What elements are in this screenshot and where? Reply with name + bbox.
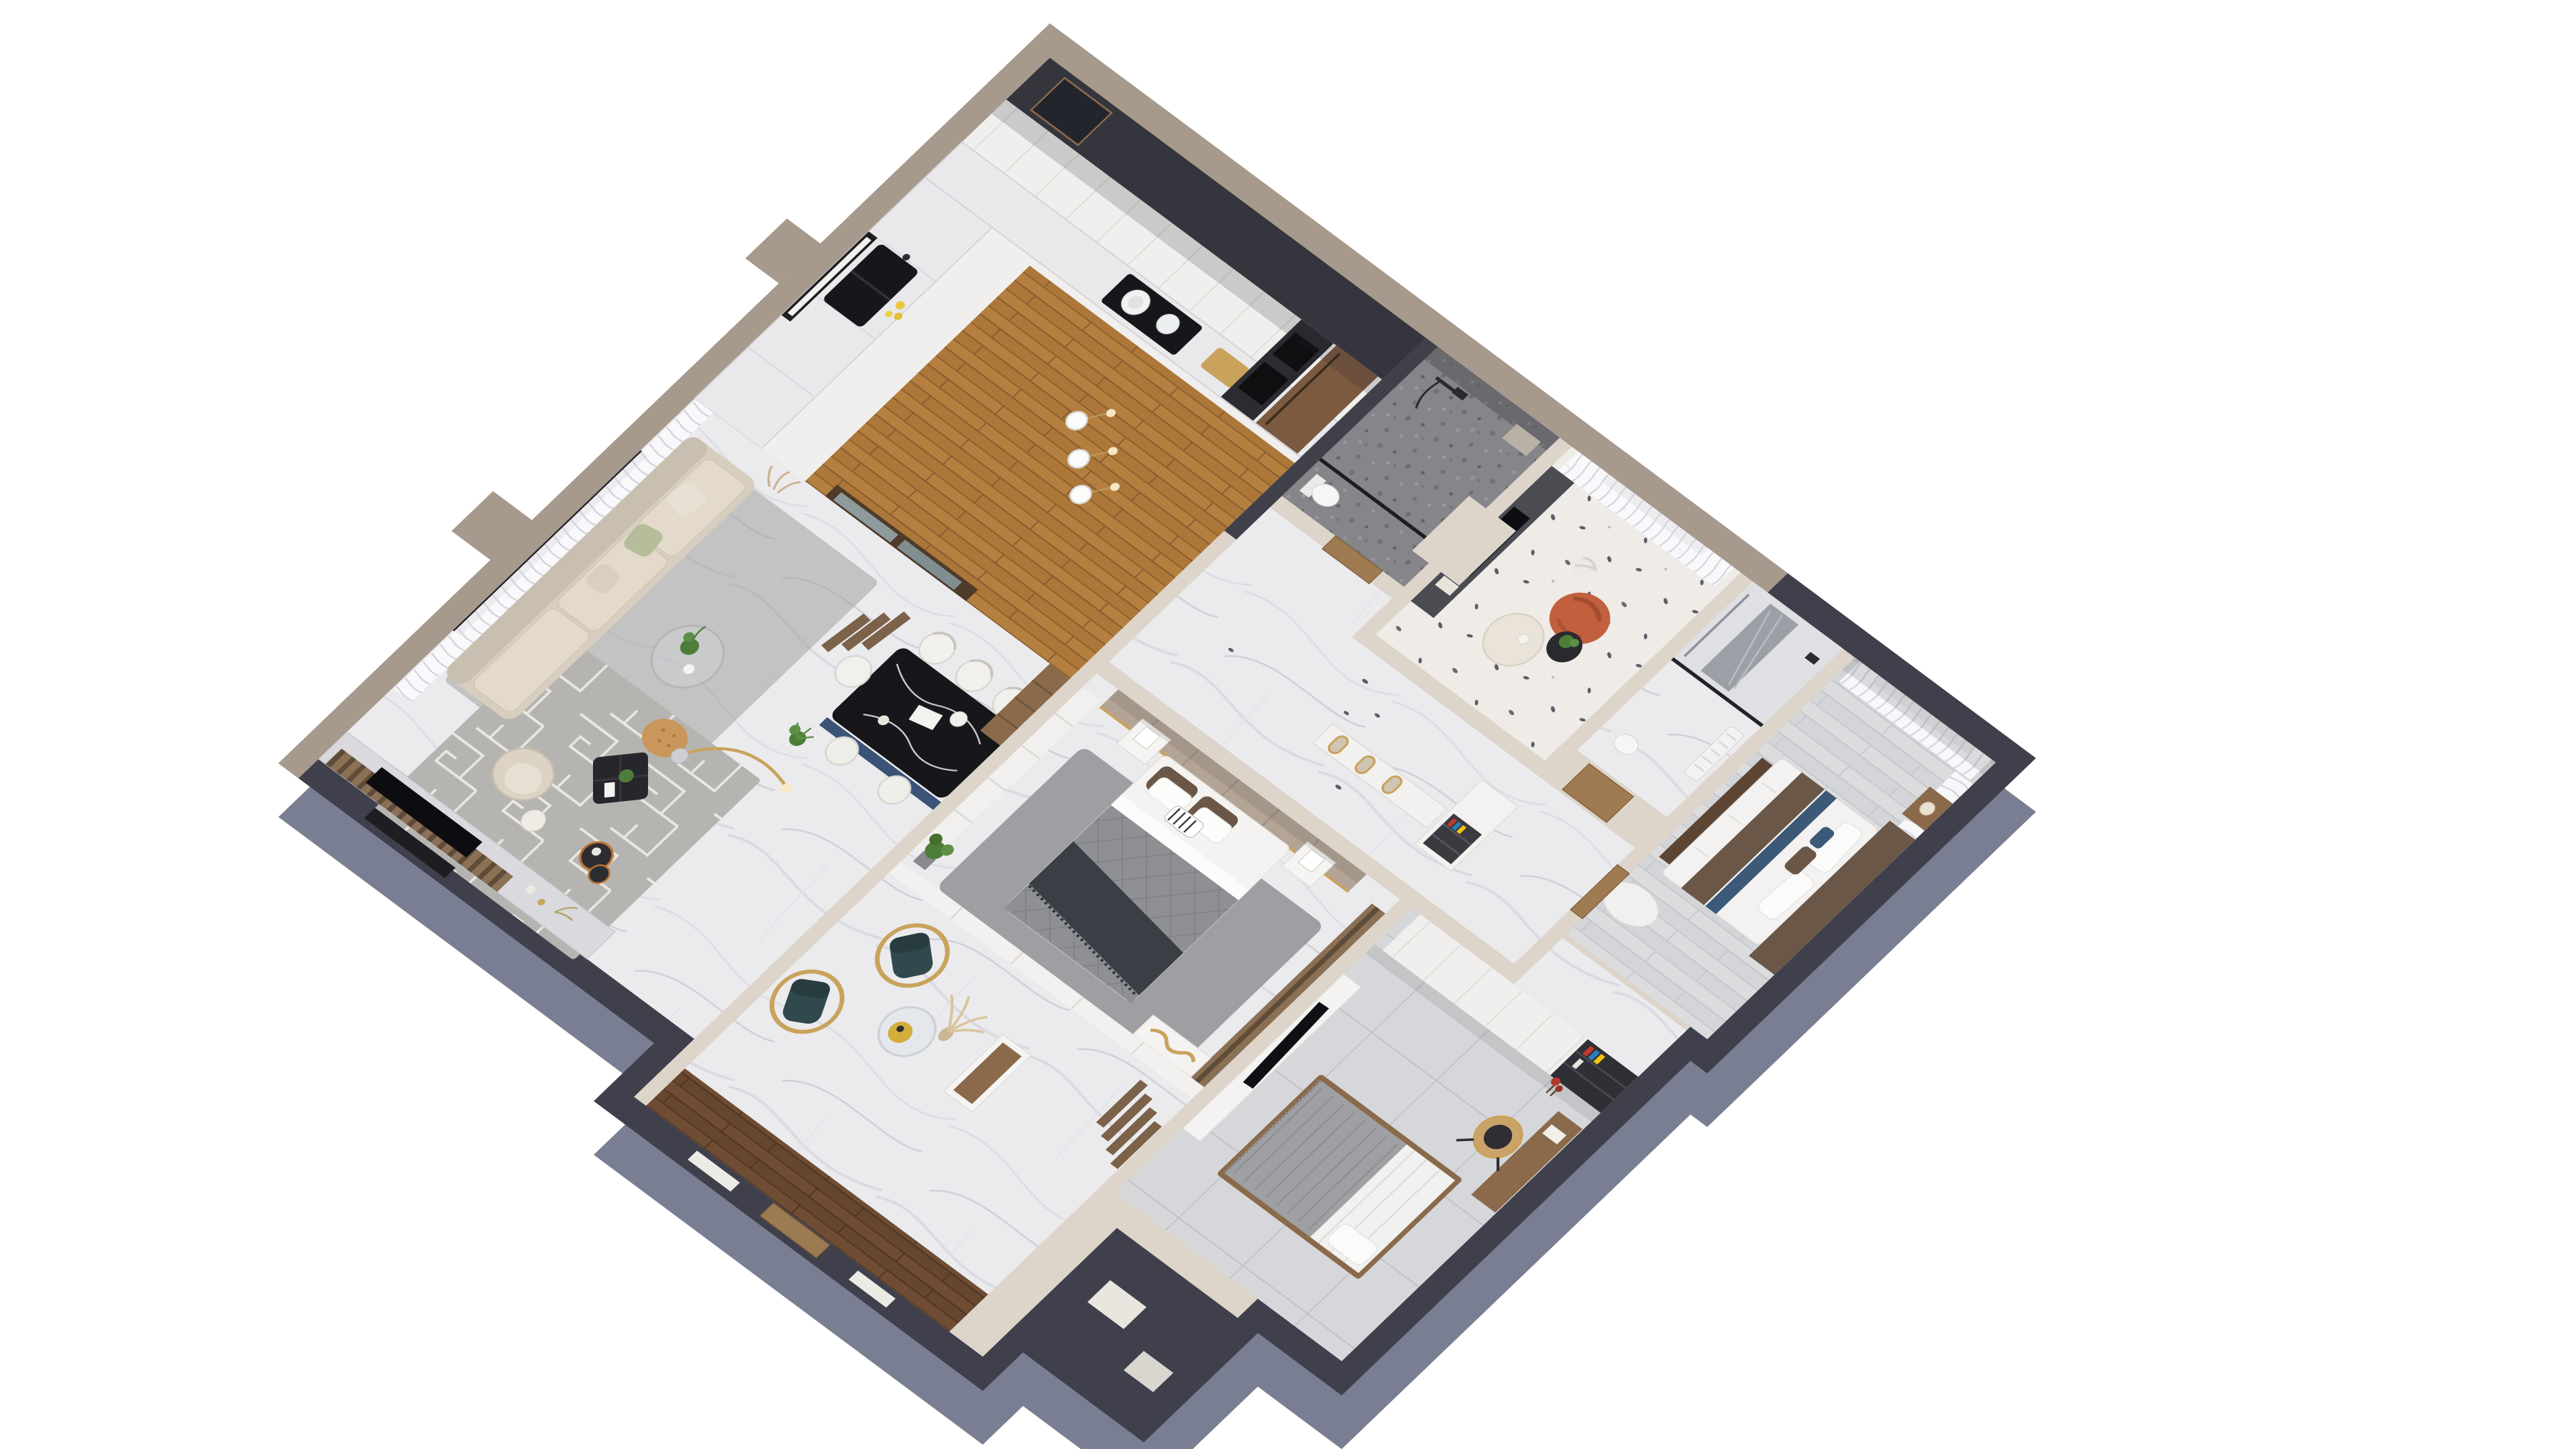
apartment-isometric-render [0, 0, 2576, 1449]
floorplan [179, 0, 2036, 1449]
black-quilted-ottoman [593, 752, 648, 805]
floorplan-render-canvas [0, 0, 2576, 1449]
